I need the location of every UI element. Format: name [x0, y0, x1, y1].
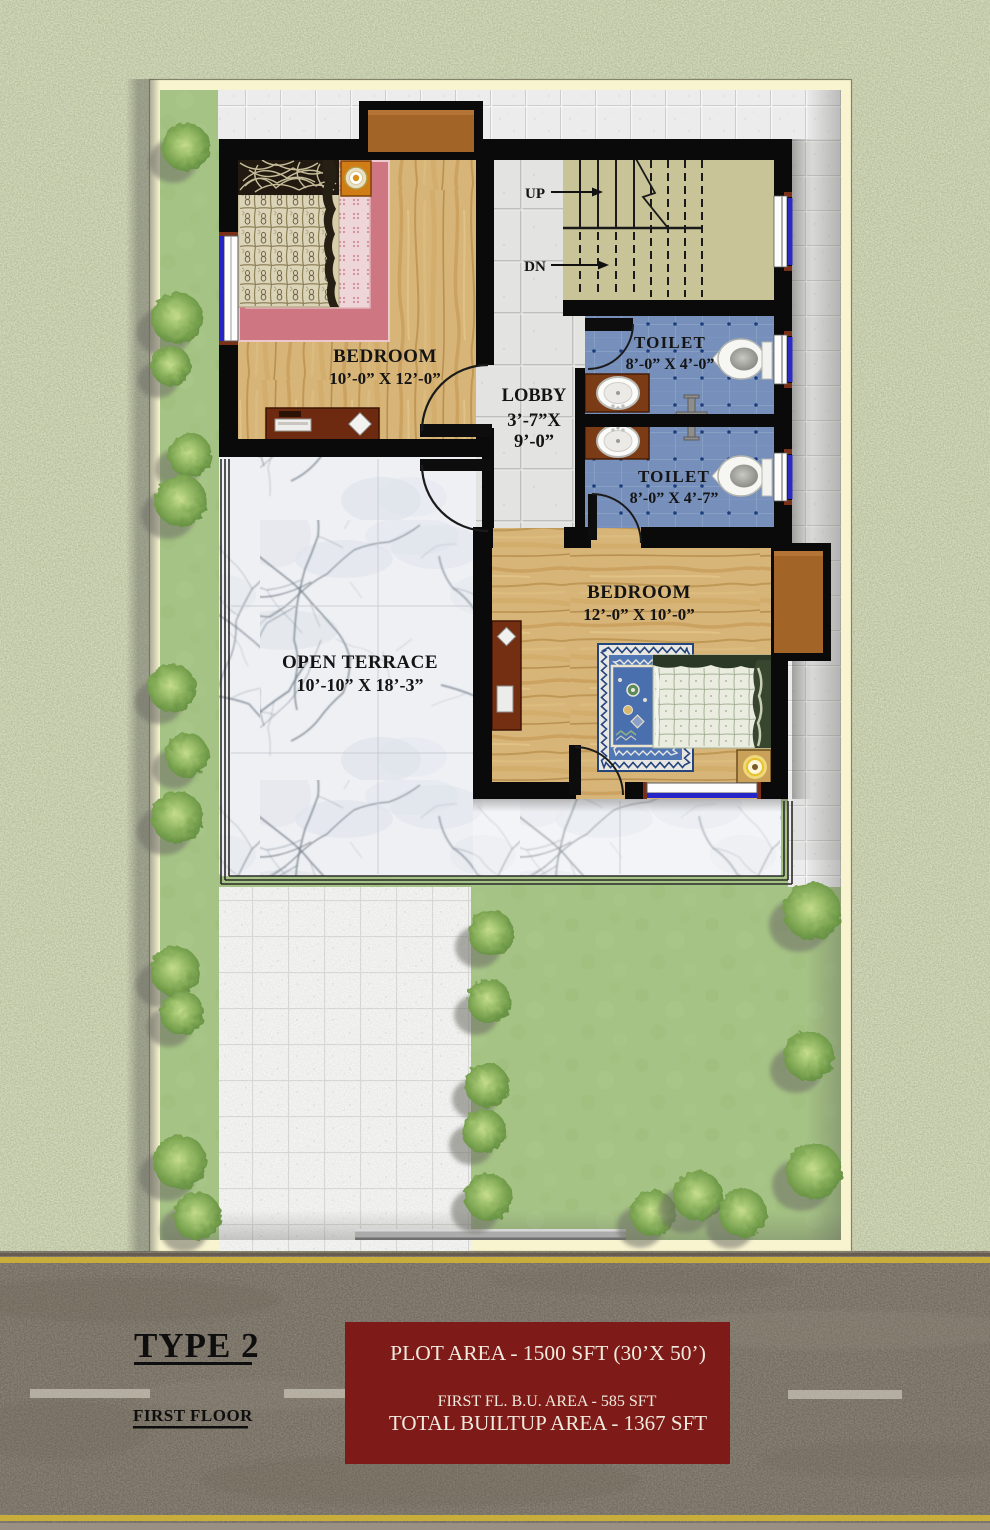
svg-text:TOILET: TOILET [638, 467, 710, 486]
svg-text:BEDROOM: BEDROOM [587, 582, 691, 603]
svg-text:10’-10” X 18’-3”: 10’-10” X 18’-3” [297, 675, 424, 695]
svg-text:LOBBY: LOBBY [502, 386, 567, 406]
svg-text:OPEN TERRACE: OPEN TERRACE [282, 652, 438, 673]
svg-text:TOTAL BUILTUP AREA - 1367 SFT: TOTAL BUILTUP AREA - 1367 SFT [389, 1411, 707, 1435]
svg-text:BEDROOM: BEDROOM [333, 346, 437, 367]
svg-text:PLOT AREA - 1500 SFT (30’X 50’: PLOT AREA - 1500 SFT (30’X 50’) [390, 1341, 706, 1365]
svg-text:UP: UP [525, 186, 545, 202]
svg-text:TOILET: TOILET [634, 333, 706, 352]
svg-text:FIRST FL. B.U. AREA - 585 SFT: FIRST FL. B.U. AREA - 585 SFT [438, 1393, 657, 1410]
svg-text:TYPE 2: TYPE 2 [134, 1326, 260, 1365]
svg-text:12’-0” X 10’-0”: 12’-0” X 10’-0” [583, 605, 694, 624]
svg-text:10’-0” X 12’-0”: 10’-0” X 12’-0” [329, 369, 440, 388]
svg-text:8’-0” X 4’-7”: 8’-0” X 4’-7” [630, 490, 719, 507]
svg-text:DN: DN [524, 259, 546, 275]
svg-text:9’-0”: 9’-0” [514, 432, 554, 452]
svg-text:8’-0” X 4’-0”: 8’-0” X 4’-0” [626, 356, 715, 373]
svg-text:FIRST FLOOR: FIRST FLOOR [133, 1406, 253, 1425]
svg-text:3’-7”X: 3’-7”X [507, 411, 561, 431]
